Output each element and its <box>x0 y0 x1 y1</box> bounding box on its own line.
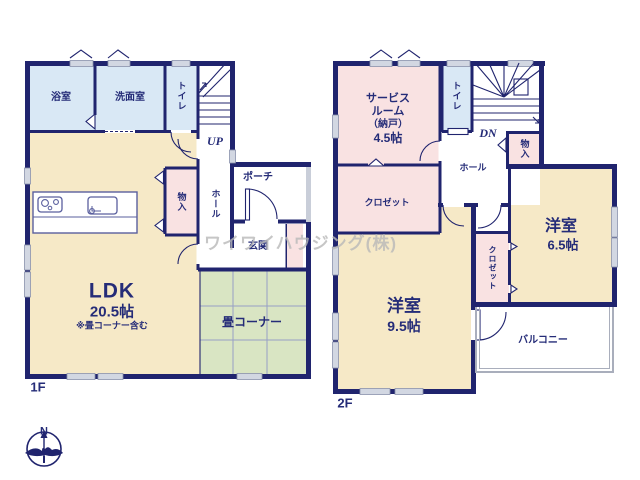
label-service-size: 4.5帖 <box>374 132 403 144</box>
porch-outer-edge <box>306 167 311 222</box>
awning-window-marks-2f <box>370 50 420 58</box>
label-storage-1f: 物入 <box>177 192 186 212</box>
label-bedroom-south-size: 9.5帖 <box>387 319 420 333</box>
label-floor2: 2F <box>337 397 352 410</box>
label-bath: 浴室 <box>51 93 71 103</box>
label-toilet-1f: トイレ <box>177 81 186 111</box>
label-bedroom-south: 洋室 <box>387 298 421 315</box>
label-ldk: LDK <box>89 281 135 302</box>
label-service-3: （納戸） <box>368 120 408 130</box>
hall-vestibule-2f <box>473 205 510 233</box>
label-closet-center: クロゼット <box>488 246 496 291</box>
awning-window-marks <box>70 50 129 58</box>
label-bedroom-east: 洋室 <box>545 219 577 235</box>
label-balcony: バルコニー <box>518 336 568 346</box>
label-floor1: 1F <box>30 381 45 394</box>
label-hall-1f: ホール <box>211 189 220 219</box>
balcony-door-arc <box>478 312 506 340</box>
label-stairs-dn: DN <box>479 127 496 139</box>
label-porch: ポーチ <box>243 173 273 183</box>
compass-north-label: N <box>40 427 48 438</box>
toilet-door-leaf-2f <box>448 129 468 135</box>
label-toilet-2f: トイレ <box>452 81 461 111</box>
compass-bird-icon <box>25 447 63 456</box>
label-washroom: 洗面室 <box>115 93 145 103</box>
label-tatami-corner: 畳コーナー <box>222 316 282 328</box>
watermark: ワイワイハウジング(株) <box>204 229 397 254</box>
label-bedroom-east-size: 6.5帖 <box>547 239 578 252</box>
label-hall-2f: ホール <box>459 164 486 173</box>
label-ldk-size: 20.5帖 <box>90 305 134 320</box>
room-bedroom-south-ext <box>440 205 473 233</box>
label-stairs-up: UP <box>207 135 223 147</box>
front-door-leaf <box>246 189 250 220</box>
kitchen-counter <box>33 192 137 233</box>
label-ldk-note: ※畳コーナー含む <box>76 322 148 331</box>
label-closet-west: クロゼット <box>364 199 409 208</box>
floorplan-page: 浴室 洗面室 トイレ UP 物入 ホール ポーチ 玄関 LDK 20.5帖 ※畳… <box>0 0 640 480</box>
label-service-2: ルーム <box>372 107 405 118</box>
label-storage-2f: 物入 <box>520 139 529 159</box>
label-service-1: サービス <box>366 94 410 105</box>
